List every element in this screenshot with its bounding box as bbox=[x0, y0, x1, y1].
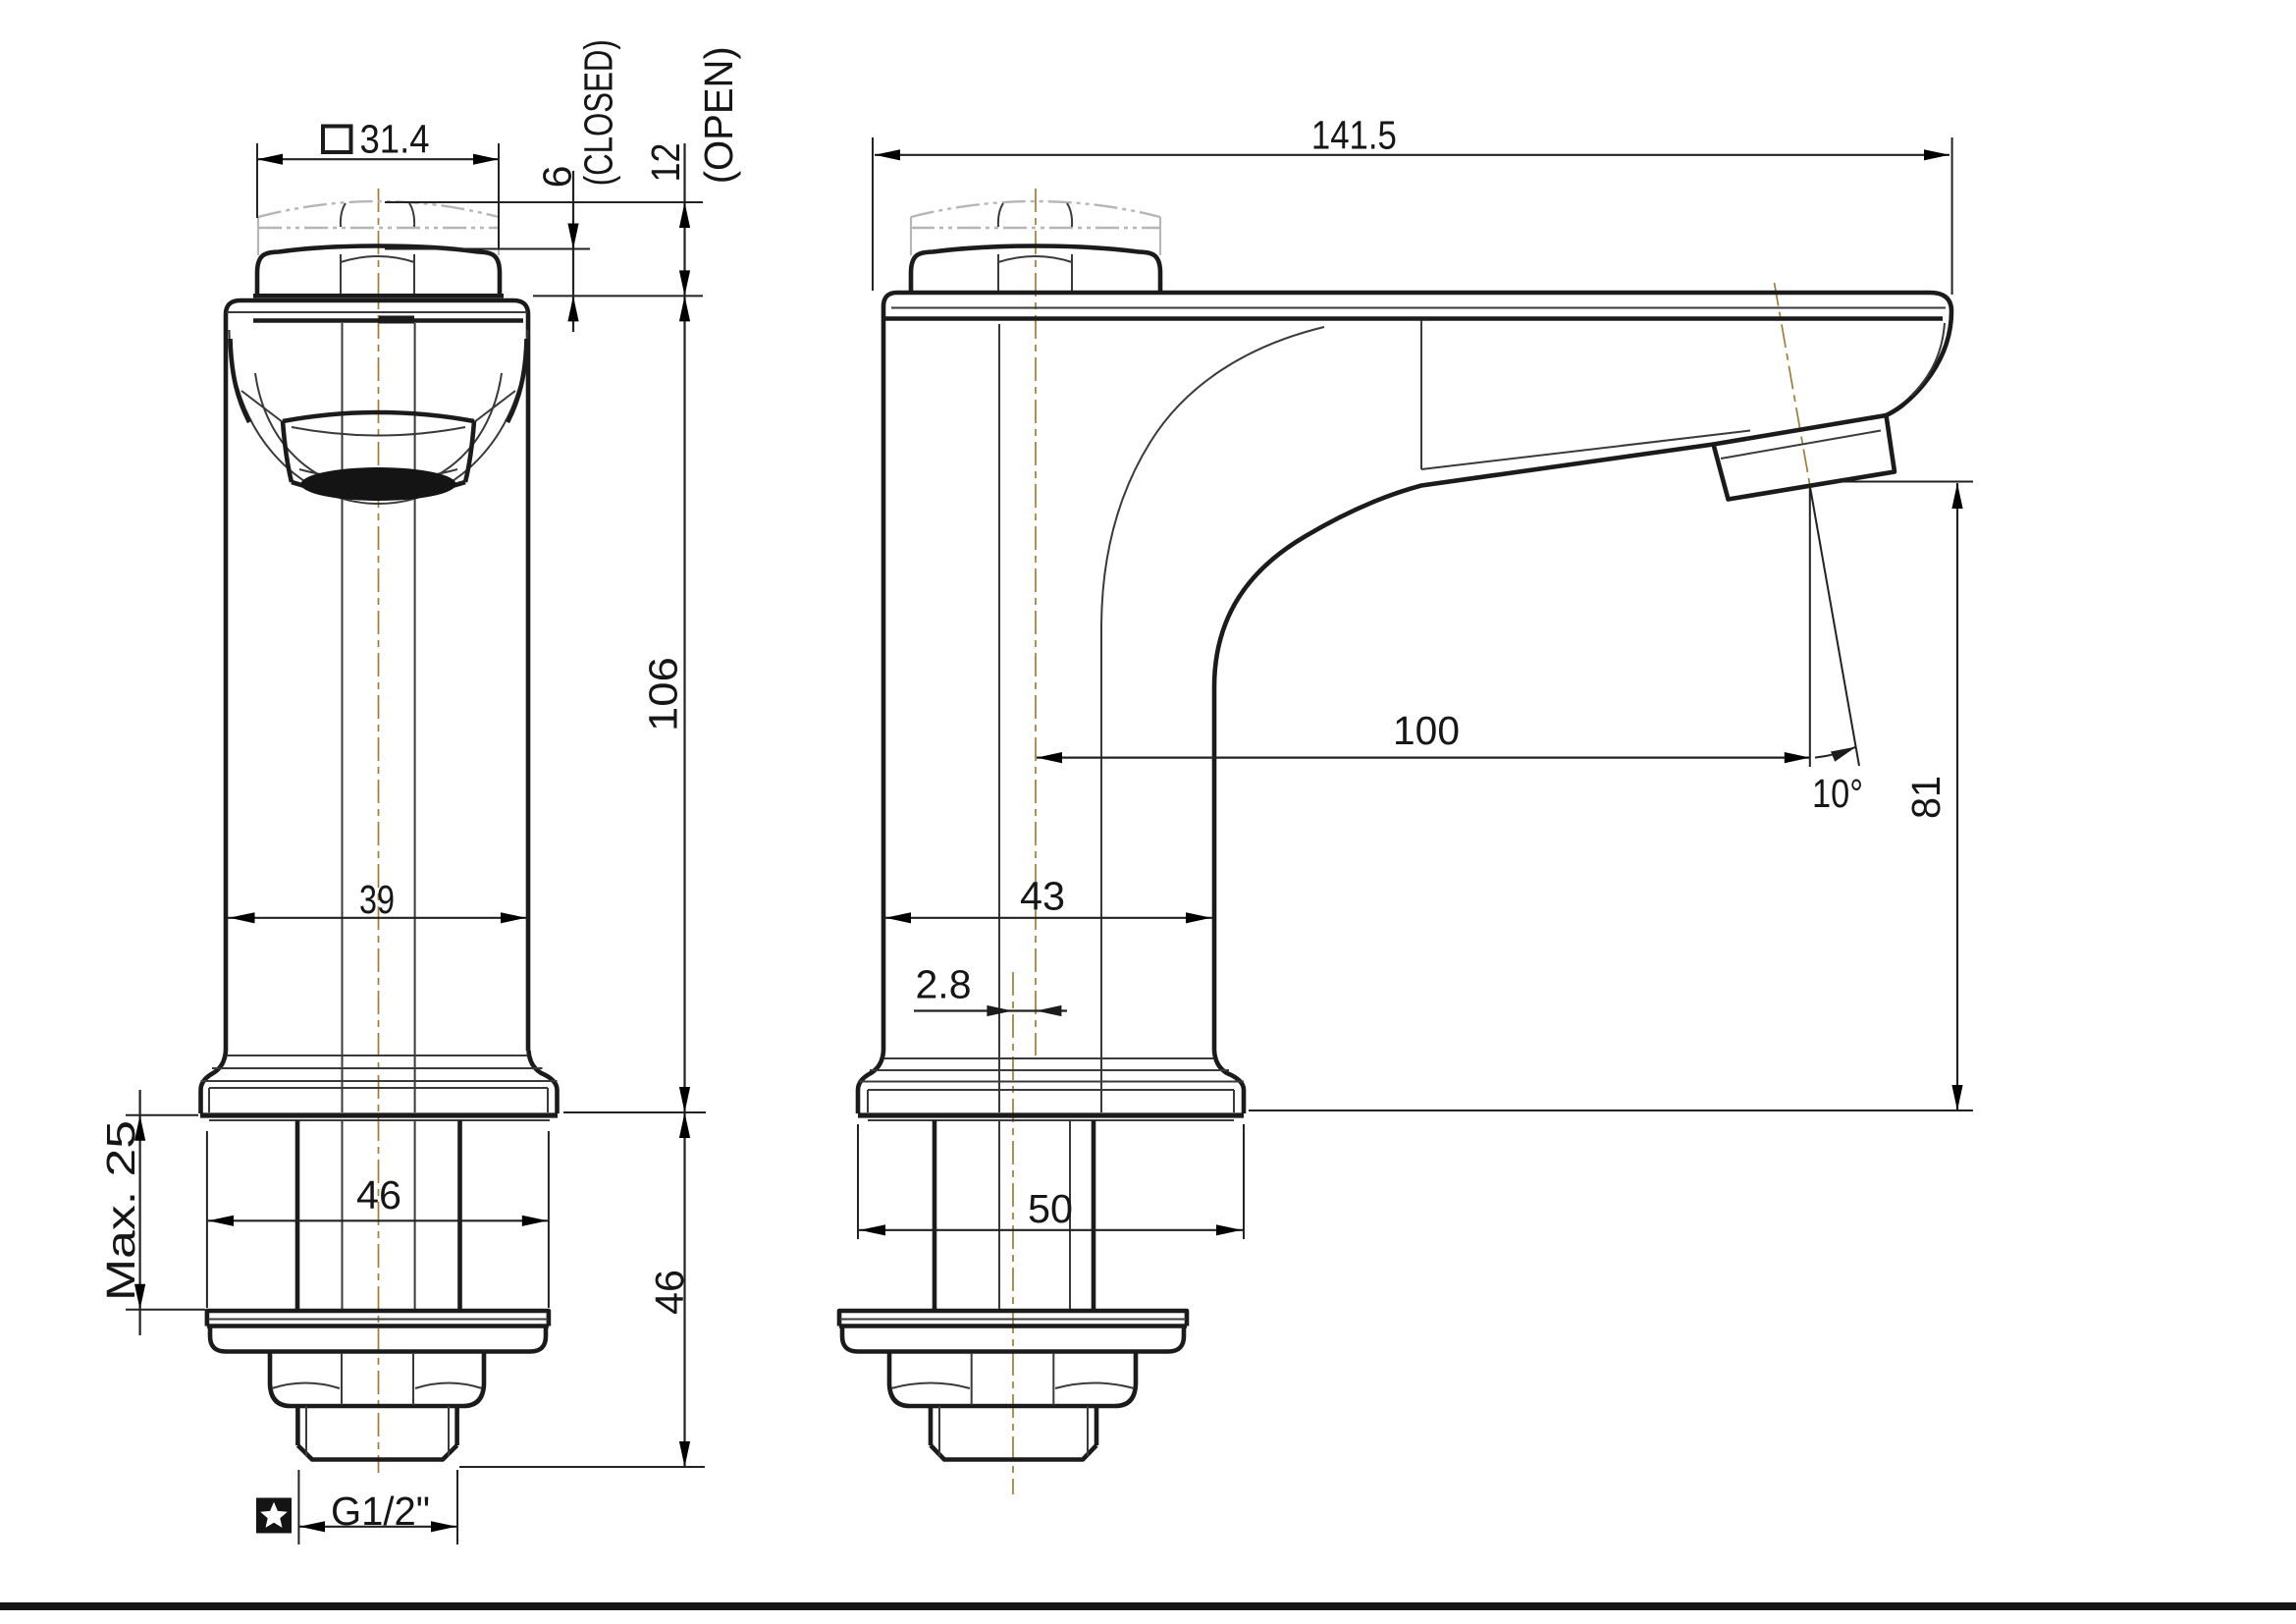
svg-text:31.4: 31.4 bbox=[360, 117, 430, 162]
svg-text:46: 46 bbox=[356, 1172, 401, 1218]
svg-text:G1/2": G1/2" bbox=[331, 1489, 430, 1534]
svg-text:141.5: 141.5 bbox=[1311, 113, 1397, 158]
svg-text:50: 50 bbox=[1028, 1186, 1073, 1231]
svg-text:100: 100 bbox=[1393, 708, 1460, 753]
svg-text:43: 43 bbox=[1020, 874, 1065, 919]
svg-text:10°: 10° bbox=[1812, 771, 1863, 816]
svg-text:81: 81 bbox=[1903, 776, 1949, 819]
svg-text:106: 106 bbox=[640, 657, 685, 731]
svg-text:Max. 25: Max. 25 bbox=[98, 1120, 143, 1301]
svg-text:(OPEN): (OPEN) bbox=[696, 46, 741, 184]
svg-text:12: 12 bbox=[643, 143, 688, 183]
svg-text:(CLOSED): (CLOSED) bbox=[576, 39, 621, 186]
svg-text:2.8: 2.8 bbox=[916, 962, 972, 1007]
svg-text:39: 39 bbox=[359, 877, 395, 922]
svg-text:46: 46 bbox=[647, 1270, 692, 1315]
